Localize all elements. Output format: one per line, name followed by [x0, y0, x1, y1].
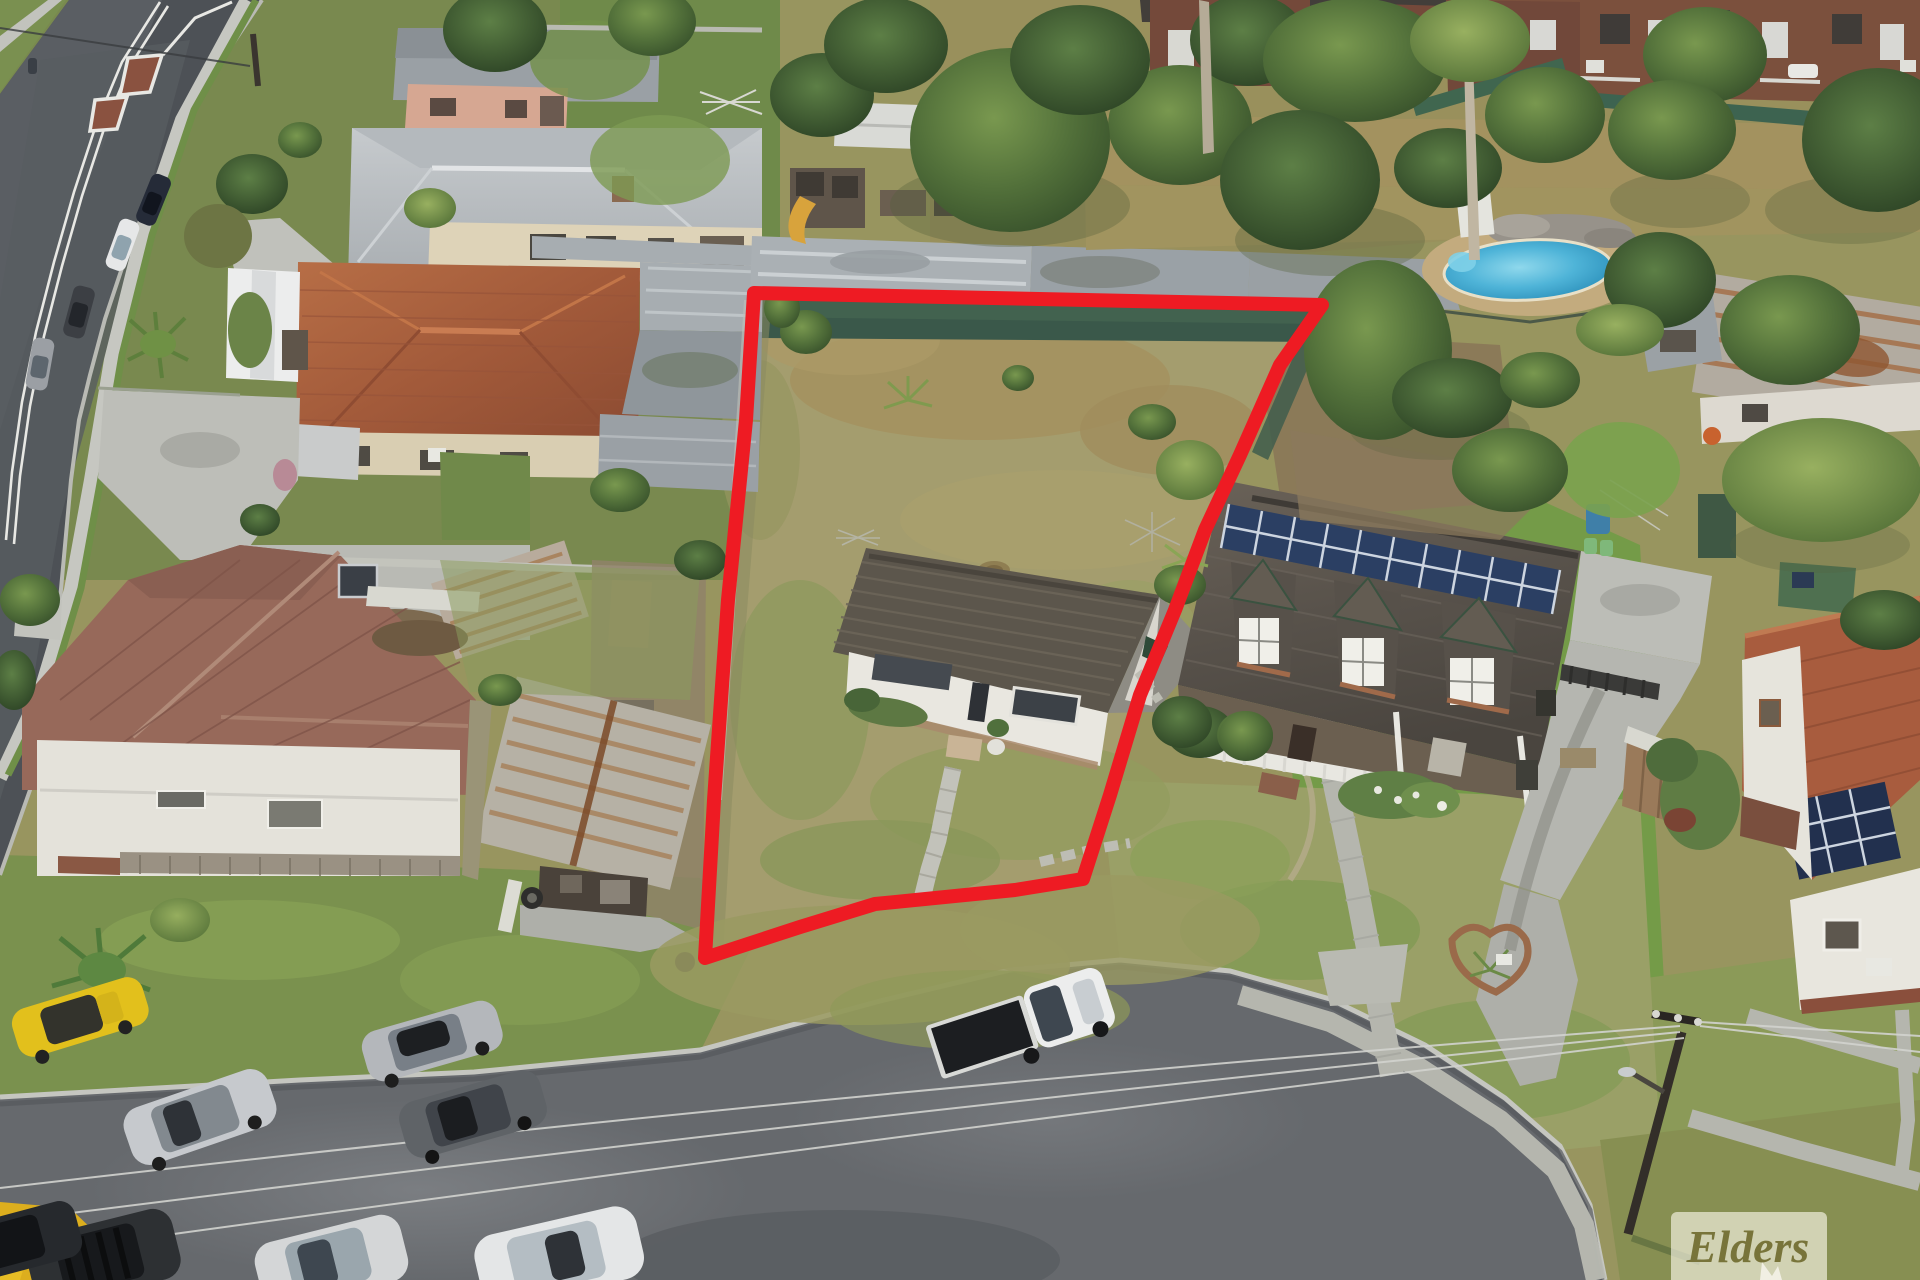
- svg-text:Elders: Elders: [1686, 1221, 1810, 1272]
